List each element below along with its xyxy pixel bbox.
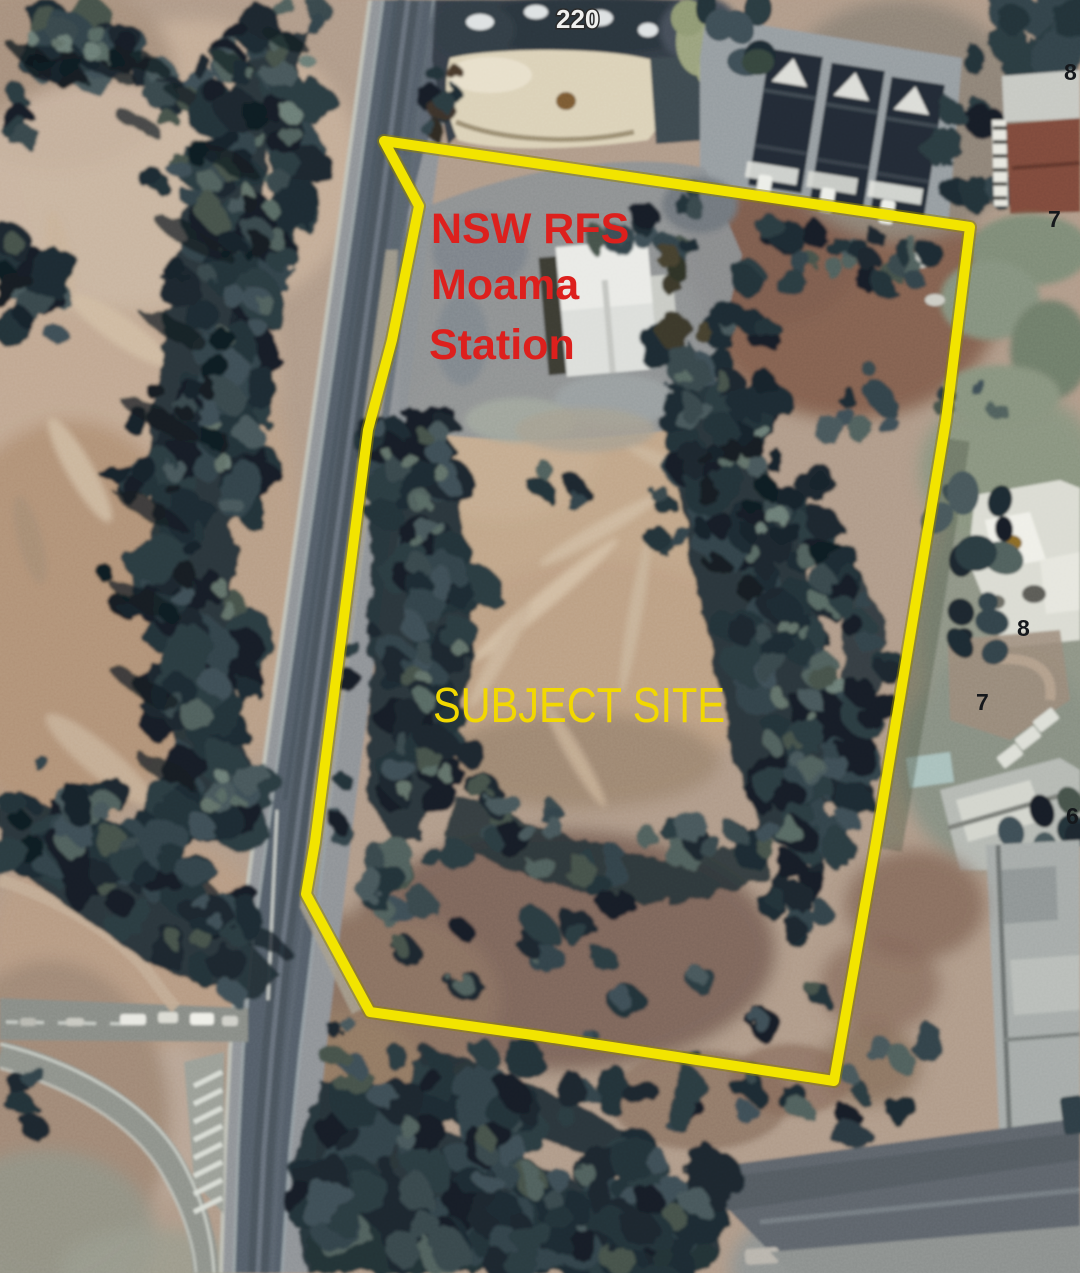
svg-text:SUBJECT SITE: SUBJECT SITE xyxy=(433,679,725,733)
svg-text:220: 220 xyxy=(556,4,599,34)
svg-text:6: 6 xyxy=(1066,803,1079,829)
svg-text:7: 7 xyxy=(976,689,989,715)
svg-text:Moama: Moama xyxy=(431,261,580,309)
svg-text:7: 7 xyxy=(1048,206,1061,232)
svg-text:NSW RFS: NSW RFS xyxy=(431,205,629,253)
svg-text:8: 8 xyxy=(1064,59,1077,85)
svg-text:8: 8 xyxy=(1017,615,1030,641)
svg-text:Station: Station xyxy=(429,321,575,369)
